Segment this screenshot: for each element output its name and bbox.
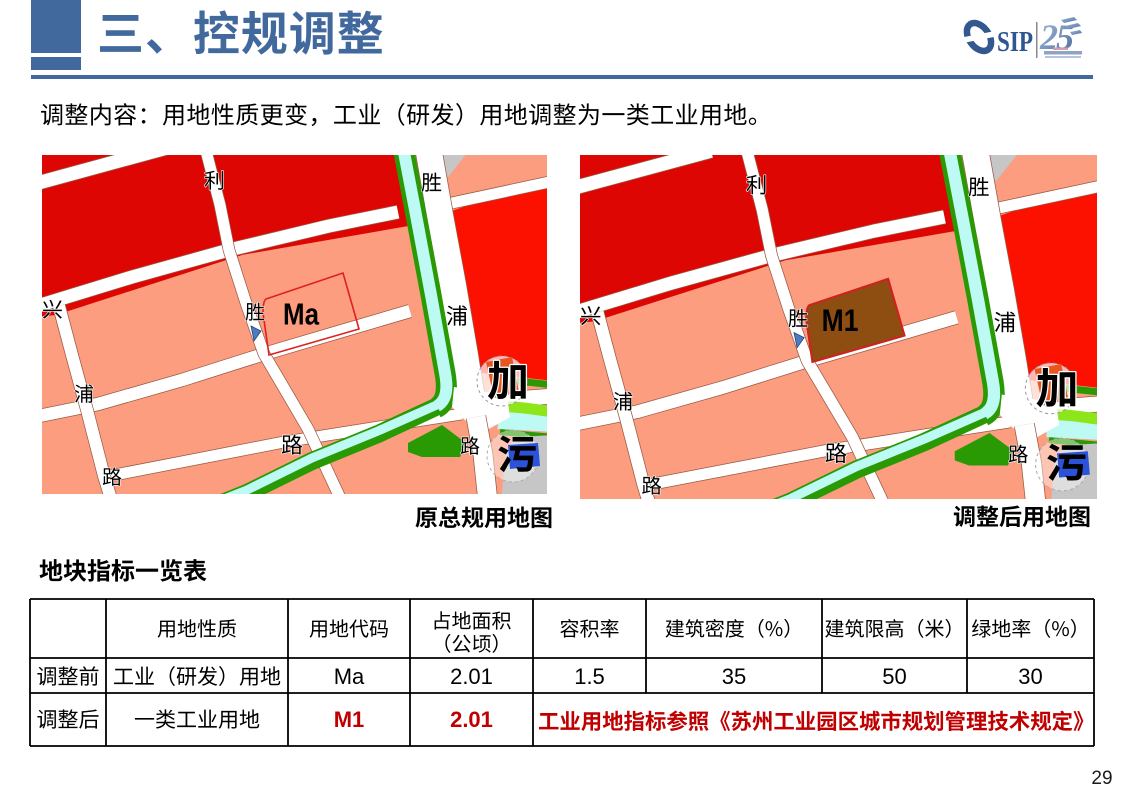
svg-text:Ma: Ma: [283, 297, 320, 332]
svg-text:35: 35: [722, 664, 746, 689]
svg-text:2.01: 2.01: [450, 707, 493, 732]
svg-text:50: 50: [882, 664, 906, 689]
svg-text:SIP: SIP: [997, 27, 1033, 58]
svg-text:2.01: 2.01: [450, 664, 493, 689]
svg-text:M1: M1: [334, 707, 365, 732]
svg-text:30: 30: [1018, 664, 1042, 689]
svg-text:29: 29: [1091, 768, 1112, 789]
svg-text:1.5: 1.5: [574, 664, 605, 689]
svg-text:Ma: Ma: [334, 664, 365, 689]
svg-text:M1: M1: [822, 302, 859, 338]
